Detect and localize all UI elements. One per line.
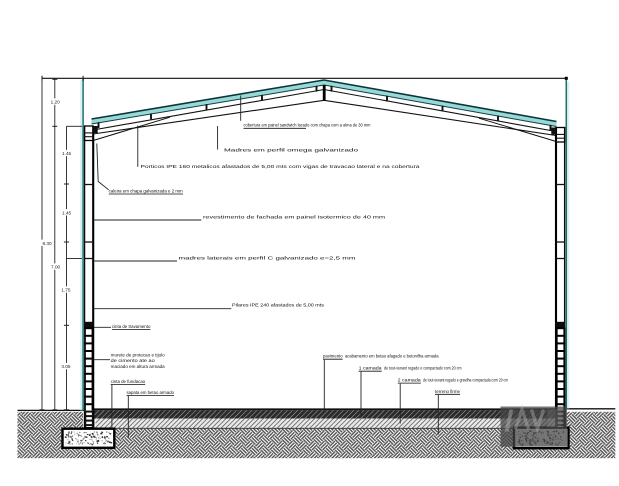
svg-text:cobertura em painel sandwich l: cobertura em painel sandwich lacado com … — [244, 122, 371, 127]
svg-text:pavimento: pavimento — [323, 354, 343, 359]
svg-text:1.45: 1.45 — [62, 151, 72, 156]
svg-text:Porticos IPE 160 metalicos afa: Porticos IPE 160 metalicos afastados de … — [141, 164, 421, 169]
svg-text:madres laterais em perfil C ga: madres laterais em perfil C galvanizado … — [179, 256, 357, 261]
svg-text:3.05: 3.05 — [61, 364, 71, 369]
svg-text:Pilares IPE 240 afastados de 5: Pilares IPE 240 afastados de 5,00 mts — [232, 302, 325, 307]
svg-text:1.75: 1.75 — [61, 288, 71, 293]
svg-text:de cimento ate ao: de cimento ate ao — [111, 358, 156, 363]
svg-text:revestimento de fachada em pai: revestimento de fachada em painel isoter… — [203, 214, 386, 219]
svg-text:acabamento em betao afagado e: acabamento em betao afagado e betonilha … — [345, 354, 439, 359]
svg-text:caleira em chapa galvanizada e: caleira em chapa galvanizada e 2 mm — [109, 188, 183, 193]
svg-text:2 camada: 2 camada — [398, 378, 422, 383]
svg-text:1.45: 1.45 — [62, 210, 72, 215]
svg-text:de tout-venant regado e compac: de tout-venant regado e compactado com 2… — [384, 366, 462, 371]
svg-text:1.20: 1.20 — [51, 100, 61, 105]
svg-text:terreno firme: terreno firme — [435, 389, 461, 394]
svg-text:sapata em betao armado: sapata em betao armado — [127, 390, 175, 395]
svg-text:maciado em altura armada: maciado em altura armada — [111, 364, 166, 369]
svg-text:cinta de fundacao: cinta de fundacao — [111, 379, 146, 384]
svg-text:cinta de travamento: cinta de travamento — [112, 324, 151, 329]
svg-text:1 camada: 1 camada — [359, 366, 383, 371]
svg-text:murete de protecao e tijolo: murete de protecao e tijolo — [111, 352, 166, 357]
svg-text:7.00: 7.00 — [51, 265, 61, 270]
svg-text:8.30: 8.30 — [42, 241, 52, 246]
svg-text:de tout-venant regado e gravil: de tout-venant regado e gravilha compact… — [423, 378, 508, 383]
svg-text:Madres em perfil omega galvani: Madres em perfil omega galvanizado — [224, 147, 359, 152]
